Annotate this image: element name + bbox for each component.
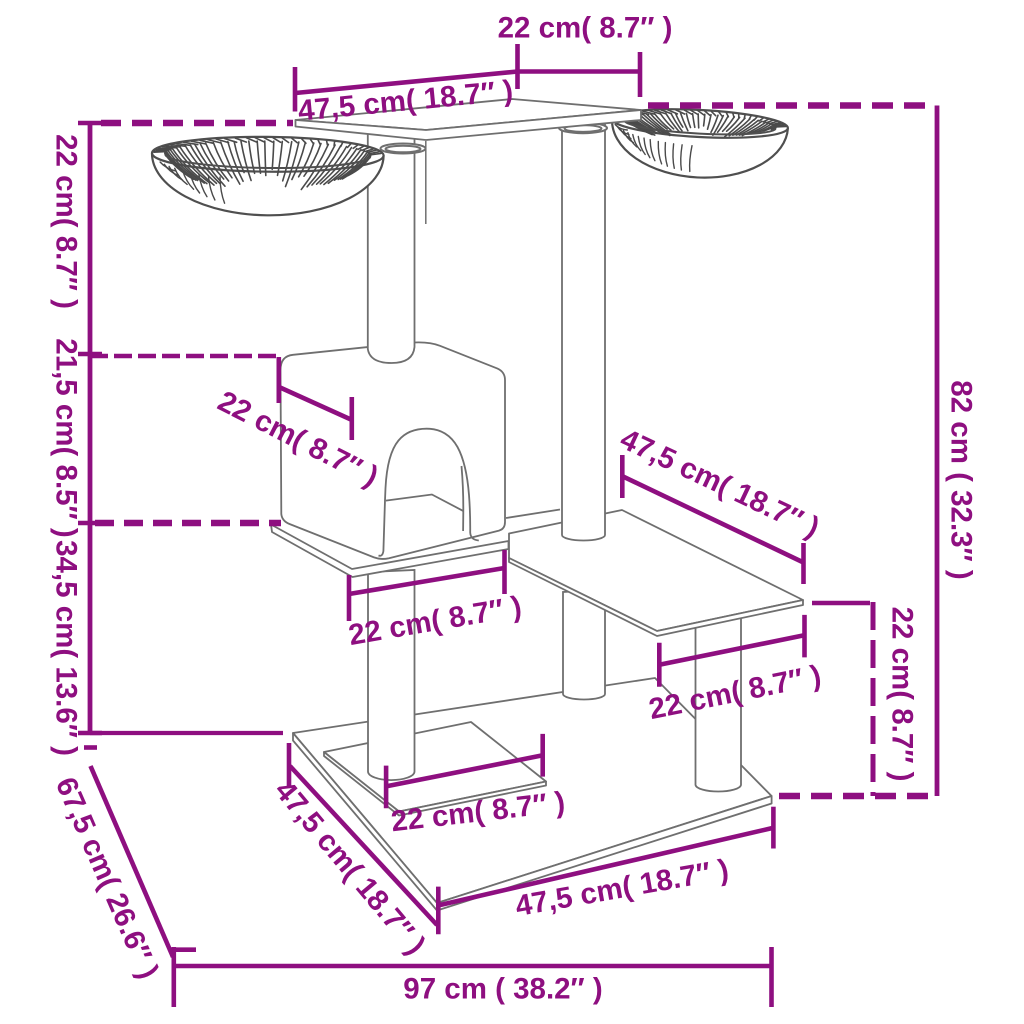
svg-text:97 cm ( 38.2″ ): 97 cm ( 38.2″ ) xyxy=(403,973,602,1006)
svg-text:22 cm( 8.7″ ): 22 cm( 8.7″ ) xyxy=(886,607,919,782)
svg-text:82 cm ( 32.3″ ): 82 cm ( 32.3″ ) xyxy=(945,380,978,579)
svg-text:22 cm( 8.7″ ): 22 cm( 8.7″ ) xyxy=(50,134,83,309)
svg-text:22 cm( 8.7″ ): 22 cm( 8.7″ ) xyxy=(498,12,673,45)
svg-text:21,5 cm( 8.5″ ): 21,5 cm( 8.5″ ) xyxy=(50,338,83,537)
svg-text:34,5 cm( 13.6″ ): 34,5 cm( 13.6″ ) xyxy=(50,540,83,756)
